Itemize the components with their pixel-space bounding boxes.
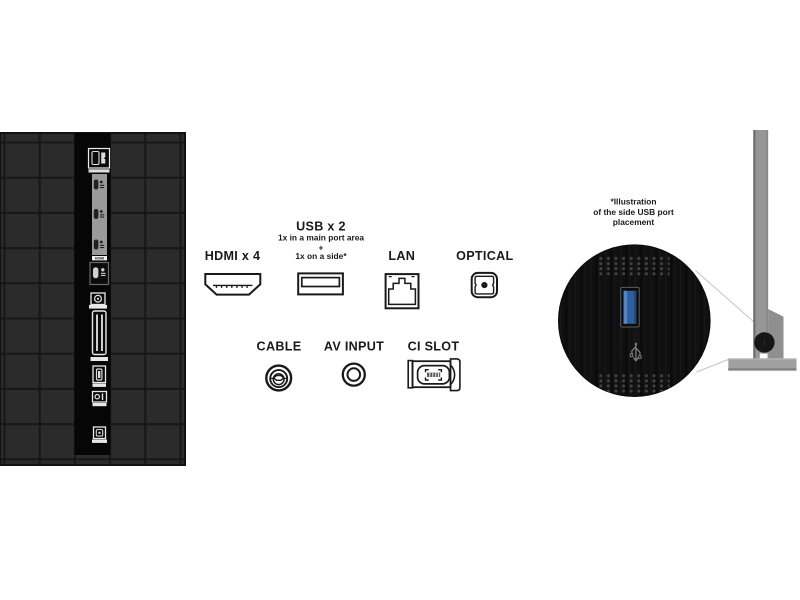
- svg-text:of the side USB port: of the side USB port: [593, 207, 674, 217]
- svg-text:placement: placement: [613, 217, 655, 227]
- svg-text:1x in a main port area: 1x in a main port area: [278, 232, 364, 242]
- svg-text:=: =: [617, 340, 624, 344]
- svg-text:OPTICAL: OPTICAL: [456, 249, 513, 263]
- svg-text:0.9A: 0.9A: [617, 347, 624, 361]
- svg-text:5V: 5V: [617, 332, 624, 341]
- svg-text:SS: SS: [630, 331, 641, 345]
- svg-text:AV INPUT: AV INPUT: [324, 339, 384, 353]
- svg-text:*Illustration: *Illustration: [610, 197, 656, 207]
- svg-text:LAN: LAN: [388, 249, 415, 263]
- svg-text:CI SLOT: CI SLOT: [408, 339, 460, 353]
- svg-text:HDMI: HDMI: [95, 257, 104, 261]
- svg-text:USB x 2: USB x 2: [296, 219, 346, 233]
- svg-text:HDMI x 4: HDMI x 4: [205, 249, 261, 263]
- svg-text:CABLE: CABLE: [257, 339, 302, 353]
- svg-text:1x on a side*: 1x on a side*: [295, 251, 347, 261]
